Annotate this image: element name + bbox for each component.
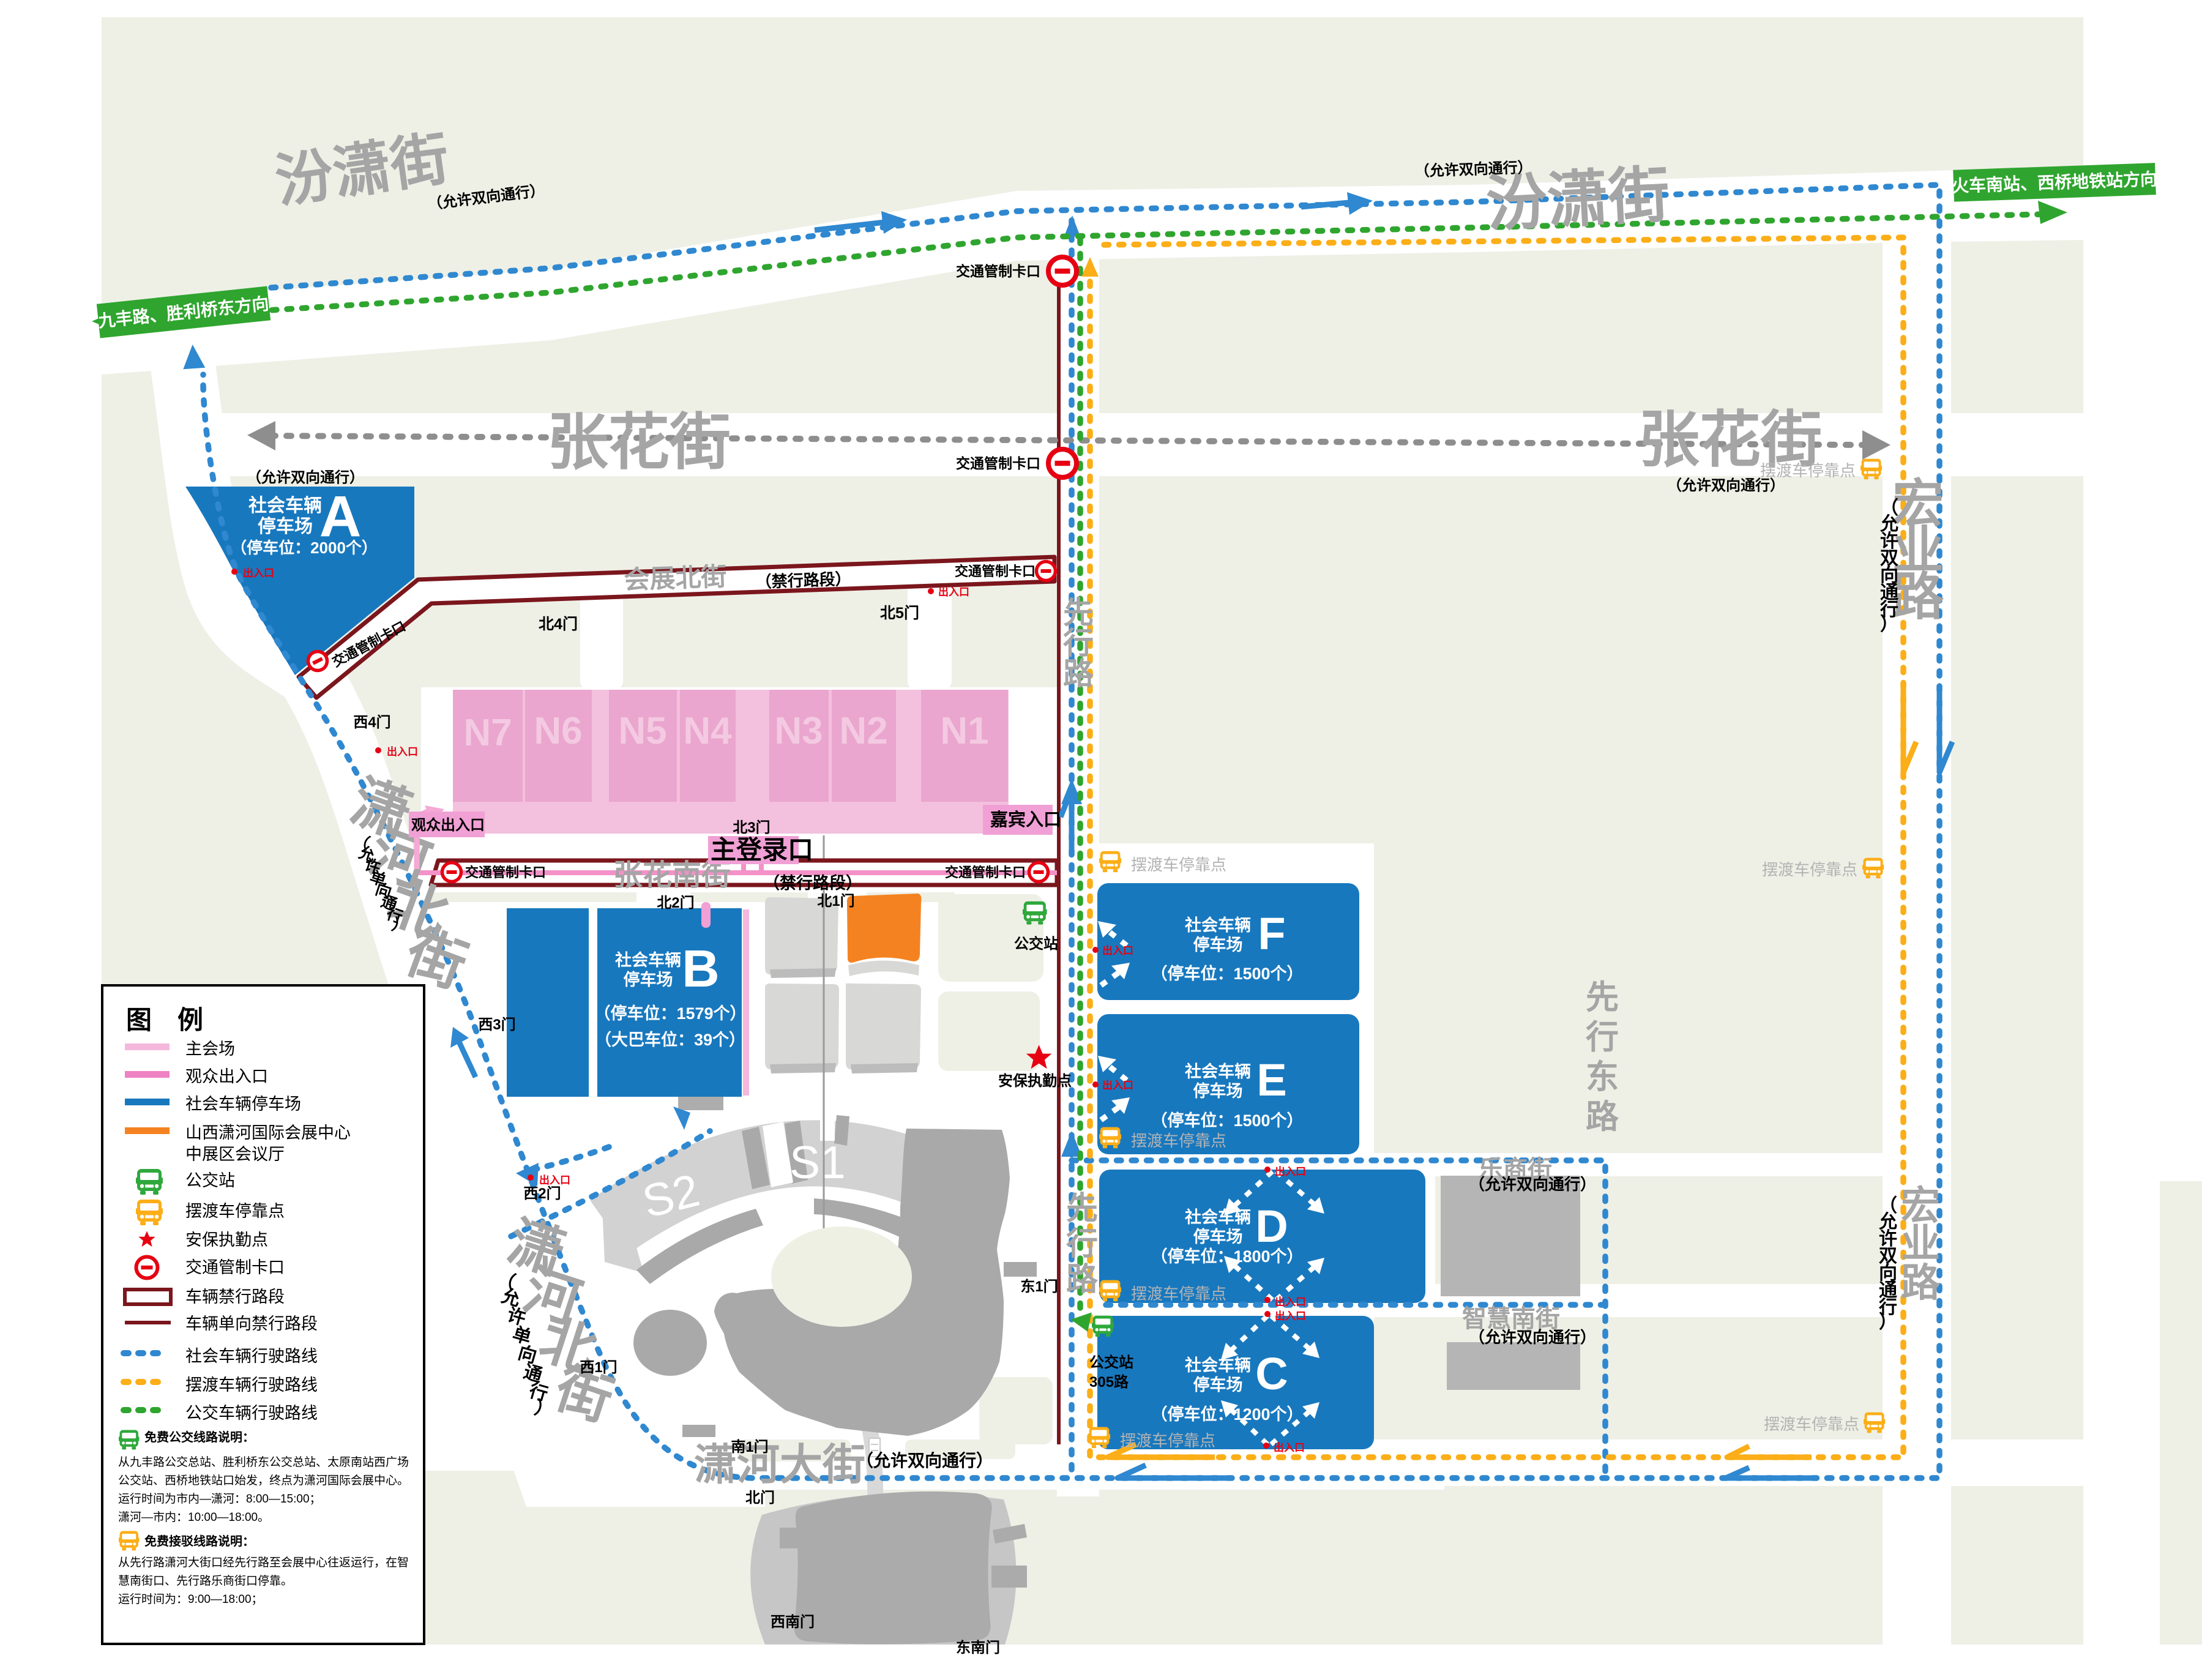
- svg-text:安保执勤点: 安保执勤点: [185, 1231, 268, 1249]
- svg-text:西南门: 西南门: [771, 1613, 815, 1630]
- svg-text:停车场: 停车场: [624, 970, 673, 989]
- svg-text:N1: N1: [940, 710, 988, 752]
- svg-text:出入口: 出入口: [938, 586, 969, 598]
- svg-text:嘉宾入口: 嘉宾入口: [990, 810, 1061, 830]
- svg-text:车辆单向禁行路段: 车辆单向禁行路段: [185, 1315, 318, 1333]
- svg-text:先: 先: [1063, 595, 1094, 630]
- svg-text:N7: N7: [463, 712, 512, 754]
- svg-text:（允许双向通行）: （允许双向通行）: [1469, 1175, 1596, 1193]
- svg-text:免费接驳线路说明：: 免费接驳线路说明：: [144, 1534, 255, 1548]
- svg-text:（停车位：1579个）: （停车位：1579个）: [594, 1004, 746, 1023]
- svg-text:摆渡车停靠点: 摆渡车停靠点: [1120, 1432, 1215, 1450]
- svg-text:F: F: [1258, 908, 1285, 959]
- svg-text:305路: 305路: [1089, 1373, 1129, 1391]
- svg-text:出入口: 出入口: [539, 1174, 570, 1186]
- svg-text:北门: 北门: [745, 1489, 775, 1506]
- svg-text:社会车辆: 社会车辆: [1185, 1208, 1251, 1226]
- svg-text:出入口: 出入口: [243, 567, 274, 579]
- svg-text:D: D: [1255, 1201, 1288, 1252]
- svg-text:出入口: 出入口: [1102, 944, 1133, 957]
- svg-text:摆渡车停靠点: 摆渡车停靠点: [1131, 856, 1226, 874]
- svg-text:东南门: 东南门: [956, 1639, 1000, 1656]
- svg-text:停车场: 停车场: [1193, 1375, 1243, 1394]
- svg-text:交通管制卡口: 交通管制卡口: [465, 865, 546, 880]
- svg-text:N6: N6: [534, 710, 582, 752]
- svg-text:交通管制卡口: 交通管制卡口: [956, 455, 1040, 471]
- svg-text:社会车辆: 社会车辆: [615, 950, 681, 969]
- svg-text:停车场: 停车场: [1193, 935, 1243, 954]
- svg-text:公交车辆行驶路线: 公交车辆行驶路线: [185, 1404, 318, 1422]
- svg-text:公交站: 公交站: [1014, 935, 1058, 952]
- svg-text:（禁行路段）: （禁行路段）: [763, 873, 862, 892]
- svg-text:西1门: 西1门: [580, 1359, 617, 1376]
- svg-text:潇河—市内：10:00—18:00。: 潇河—市内：10:00—18:00。: [118, 1510, 269, 1524]
- svg-text:行: 行: [1586, 1019, 1619, 1056]
- svg-text:西2门: 西2门: [523, 1185, 561, 1202]
- svg-text:业: 业: [1901, 1222, 1940, 1266]
- svg-text:出入口: 出入口: [1275, 1296, 1306, 1308]
- svg-text:出入口: 出入口: [1102, 1079, 1133, 1091]
- svg-text:（停车位：1500个）: （停车位：1500个）: [1151, 964, 1303, 983]
- svg-text:社会车辆停车场: 社会车辆停车场: [185, 1095, 301, 1113]
- svg-text:交通管制卡口: 交通管制卡口: [956, 263, 1040, 279]
- svg-text:先: 先: [1586, 979, 1619, 1016]
- svg-text:观众出入口: 观众出入口: [411, 817, 485, 834]
- svg-text:行: 行: [1066, 1226, 1098, 1262]
- svg-text:N4: N4: [683, 710, 732, 752]
- svg-text:摆渡车停靠点: 摆渡车停靠点: [1762, 861, 1857, 879]
- svg-text:从九丰路公交总站、胜利桥东公交总站、太原南站西广场: 从九丰路公交总站、胜利桥东公交总站、太原南站西广场: [118, 1455, 409, 1469]
- svg-text:（禁行路段）: （禁行路段）: [755, 570, 851, 591]
- svg-text:路: 路: [1063, 657, 1094, 691]
- svg-text:交通管制卡口: 交通管制卡口: [945, 865, 1026, 880]
- svg-text:公交站: 公交站: [185, 1171, 235, 1190]
- svg-text:车辆禁行路段: 车辆禁行路段: [185, 1288, 285, 1306]
- svg-text:北2门: 北2门: [657, 894, 694, 911]
- svg-text:北3门: 北3门: [733, 819, 770, 836]
- svg-text:出入口: 出入口: [1274, 1441, 1305, 1454]
- svg-text:主会场: 主会场: [185, 1040, 235, 1058]
- svg-text:安保执勤点: 安保执勤点: [998, 1072, 1072, 1089]
- svg-text:摆渡车停靠点: 摆渡车停靠点: [1131, 1132, 1226, 1150]
- svg-text:摆渡车停靠点: 摆渡车停靠点: [185, 1202, 285, 1220]
- svg-text:观众出入口: 观众出入口: [185, 1067, 268, 1086]
- svg-text:公交站: 公交站: [1089, 1354, 1133, 1371]
- svg-text:N3: N3: [774, 710, 823, 752]
- svg-text:南1门: 南1门: [731, 1438, 768, 1455]
- svg-text:北4门: 北4门: [539, 615, 578, 633]
- svg-text:东1门: 东1门: [1020, 1278, 1058, 1295]
- svg-text:摆渡车停靠点: 摆渡车停靠点: [1760, 461, 1856, 480]
- svg-text:摆渡车停靠点: 摆渡车停靠点: [1764, 1415, 1859, 1433]
- svg-text:张花街: 张花街: [547, 409, 731, 477]
- svg-text:摆渡车辆行驶路线: 摆渡车辆行驶路线: [185, 1376, 318, 1394]
- svg-text:S1: S1: [789, 1137, 846, 1188]
- svg-text:（允许双向通行）: （允许双向通行）: [247, 469, 364, 486]
- svg-text:路: 路: [1066, 1262, 1099, 1297]
- svg-text:出入口: 出入口: [1275, 1165, 1306, 1178]
- svg-text:出入口: 出入口: [1275, 1310, 1306, 1322]
- svg-text:N5: N5: [618, 710, 666, 752]
- svg-text:路: 路: [1586, 1099, 1619, 1135]
- svg-text:中展区会议厅: 中展区会议厅: [185, 1145, 285, 1163]
- svg-text:北1门: 北1门: [817, 892, 854, 909]
- svg-text:山西潇河国际会展中心: 山西潇河国际会展中心: [185, 1124, 351, 1142]
- svg-text:公交站、西桥地铁站口始发，终点为潇河国际会展中心。: 公交站、西桥地铁站口始发，终点为潇河国际会展中心。: [118, 1474, 409, 1487]
- svg-text:社会车辆: 社会车辆: [1185, 916, 1251, 935]
- svg-text:先: 先: [1066, 1191, 1098, 1226]
- svg-text:N2: N2: [839, 710, 887, 752]
- svg-text:交通管制卡口: 交通管制卡口: [185, 1258, 285, 1277]
- svg-text:西3门: 西3门: [478, 1016, 515, 1033]
- svg-text:摆渡车停靠点: 摆渡车停靠点: [1131, 1285, 1226, 1303]
- svg-text:）: ）: [1880, 614, 1898, 635]
- svg-text:（允许双向通行）: （允许双向通行）: [1469, 1328, 1596, 1346]
- svg-text:社会车辆: 社会车辆: [1185, 1356, 1251, 1375]
- svg-text:行: 行: [1063, 626, 1094, 660]
- svg-text:运行时间为：9:00—18:00；: 运行时间为：9:00—18:00；: [118, 1592, 263, 1606]
- svg-text:停车场: 停车场: [1193, 1081, 1243, 1100]
- svg-text:图 例: 图 例: [126, 1006, 203, 1034]
- svg-text:路: 路: [1901, 1261, 1941, 1305]
- svg-text:慧南街口、先行路乐商街口停靠。: 慧南街口、先行路乐商街口停靠。: [118, 1574, 293, 1588]
- svg-text:北5门: 北5门: [880, 604, 919, 622]
- svg-text:交通管制卡口: 交通管制卡口: [955, 564, 1036, 579]
- svg-text:路: 路: [1892, 568, 1944, 625]
- svg-text:C: C: [1255, 1348, 1288, 1399]
- svg-text:主登录口: 主登录口: [711, 835, 813, 864]
- svg-text:东: 东: [1586, 1059, 1619, 1096]
- svg-text:潇河大街: 潇河大街: [694, 1441, 865, 1489]
- svg-text:免费公交线路说明：: 免费公交线路说明：: [144, 1430, 255, 1444]
- svg-text:）: ）: [1879, 1312, 1897, 1332]
- svg-text:B: B: [682, 940, 719, 998]
- svg-text:出入口: 出入口: [387, 745, 418, 758]
- svg-text:会展北街: 会展北街: [624, 562, 728, 595]
- svg-text:（停车位：1500个）: （停车位：1500个）: [1151, 1111, 1303, 1130]
- svg-text:（大巴车位：39个）: （大巴车位：39个）: [595, 1030, 745, 1049]
- svg-text:社会车辆行驶路线: 社会车辆行驶路线: [185, 1347, 318, 1365]
- svg-text:停车场: 停车场: [258, 516, 313, 537]
- svg-text:（停车位：2000个）: （停车位：2000个）: [231, 539, 378, 557]
- svg-text:（允许双向通行）: （允许双向通行）: [856, 1450, 993, 1470]
- svg-text:E: E: [1256, 1055, 1286, 1105]
- svg-text:运行时间为市内—潇河：8:00—15:00；: 运行时间为市内—潇河：8:00—15:00；: [118, 1492, 321, 1506]
- svg-text:西4门: 西4门: [353, 714, 390, 731]
- svg-text:从先行路潇河大街口经先行路至会展中心往返运行，在智: 从先行路潇河大街口经先行路至会展中心往返运行，在智: [118, 1556, 409, 1569]
- svg-text:社会车辆: 社会车辆: [1185, 1062, 1251, 1081]
- svg-text:停车场: 停车场: [1193, 1227, 1243, 1246]
- svg-text:社会车辆: 社会车辆: [248, 495, 322, 516]
